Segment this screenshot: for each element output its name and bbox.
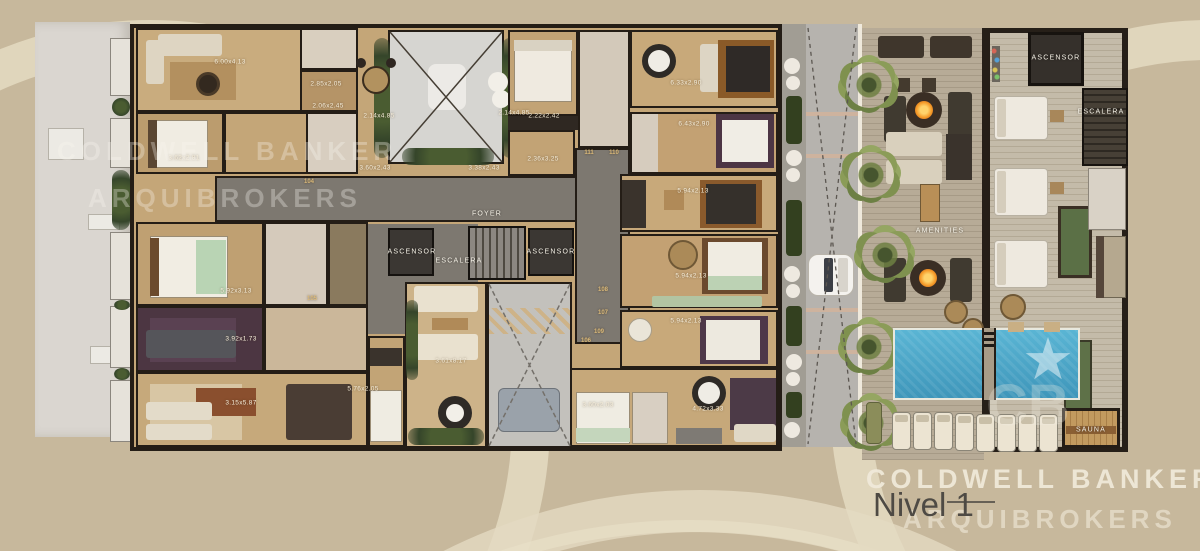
planter bbox=[786, 392, 802, 418]
bed-blanket-green bbox=[576, 428, 630, 442]
deck-sofa-cream bbox=[886, 160, 942, 184]
room-bath-inset bbox=[632, 392, 668, 444]
balcony-table bbox=[784, 266, 800, 282]
sofa bbox=[146, 40, 164, 84]
patio-chair bbox=[386, 58, 396, 68]
elevator-wing bbox=[1028, 32, 1084, 86]
balcony-west bbox=[110, 232, 132, 300]
palm-tree bbox=[848, 152, 894, 198]
watermark-left-line2: ARQUIBROKERS bbox=[88, 183, 362, 214]
balcony-table bbox=[786, 168, 800, 182]
room-closet bbox=[300, 70, 358, 112]
wardrobe bbox=[370, 348, 402, 366]
balcony-table bbox=[786, 284, 800, 298]
bed bbox=[370, 390, 402, 442]
climbing-wall bbox=[992, 46, 1000, 82]
rattan-table bbox=[668, 240, 698, 270]
planting bbox=[402, 148, 494, 165]
watermark-logo-letters: CB bbox=[986, 372, 1070, 439]
lounge-chair-white bbox=[488, 72, 508, 92]
watermark-left-line1: COLDWELL BANKER bbox=[57, 136, 397, 167]
dining-table-top bbox=[698, 382, 720, 404]
candle-console bbox=[920, 184, 940, 222]
bed-sheet bbox=[708, 242, 762, 276]
sun-lounger bbox=[913, 412, 932, 450]
wardrobe bbox=[508, 116, 578, 130]
ramp-hatch bbox=[489, 308, 570, 334]
hedge bbox=[114, 368, 130, 380]
sofa-dark bbox=[146, 330, 236, 358]
wing-bath bbox=[1088, 168, 1126, 230]
kitchenette bbox=[622, 180, 646, 228]
coffee-table bbox=[196, 72, 220, 96]
balcony-table bbox=[786, 150, 802, 166]
balcony-table bbox=[786, 372, 800, 386]
planter bbox=[786, 96, 802, 144]
level-label-rule bbox=[947, 501, 995, 503]
room-kitchen bbox=[264, 306, 368, 372]
elevator-left bbox=[388, 228, 434, 276]
fire-pit-flame bbox=[915, 101, 933, 119]
sofa bbox=[158, 34, 222, 56]
floorplan-render: ★ FOYERASCENSORESCALERAASCENSORASCENSORE… bbox=[0, 0, 1200, 551]
room-bath bbox=[300, 28, 358, 70]
stairs-core bbox=[468, 226, 526, 280]
deck-chair bbox=[922, 78, 936, 92]
rug-purple bbox=[730, 378, 776, 430]
side-table bbox=[664, 190, 684, 210]
patio-table bbox=[362, 66, 390, 94]
deck-table bbox=[946, 134, 972, 180]
deck-sofa bbox=[950, 258, 972, 302]
elevator-right bbox=[528, 228, 574, 276]
driveway-stripe bbox=[806, 308, 858, 312]
hedge bbox=[112, 98, 130, 116]
patio-chair bbox=[356, 58, 366, 68]
planting bbox=[406, 300, 418, 380]
sun-lounger bbox=[892, 412, 911, 450]
deck-sofa-cream bbox=[886, 132, 942, 156]
pool-ladder bbox=[984, 332, 994, 350]
rattan-table bbox=[1000, 294, 1026, 320]
side-table bbox=[1050, 182, 1064, 194]
planter bbox=[786, 306, 802, 346]
balcony-table bbox=[786, 76, 800, 90]
sun-lounger bbox=[934, 412, 953, 450]
car-windshield bbox=[824, 258, 833, 292]
pool-table bbox=[1058, 206, 1092, 278]
driveway-stripe bbox=[806, 112, 858, 116]
bed-blanket-green bbox=[196, 240, 226, 294]
sofa bbox=[146, 402, 212, 420]
room-bath-inset bbox=[632, 114, 658, 172]
bed-pillows bbox=[514, 40, 572, 51]
bench-wood bbox=[432, 318, 468, 330]
planting bbox=[408, 428, 484, 445]
deck-bench bbox=[878, 36, 924, 58]
balcony-table bbox=[784, 58, 800, 74]
balcony-west bbox=[110, 38, 132, 96]
planter bbox=[786, 200, 802, 256]
egg-chair bbox=[628, 318, 652, 342]
level-label: Nivel 1 bbox=[873, 486, 974, 524]
dining-set bbox=[286, 384, 352, 440]
bed-duvet-dark bbox=[706, 184, 756, 224]
daybed bbox=[994, 96, 1048, 140]
room-bath bbox=[264, 222, 328, 306]
palm-tree bbox=[846, 324, 892, 370]
headboard bbox=[150, 238, 159, 296]
balcony-west bbox=[110, 380, 132, 442]
sauna-bench bbox=[1066, 426, 1116, 434]
balcony-table bbox=[784, 422, 800, 438]
balcony-table bbox=[786, 354, 802, 370]
side-table bbox=[1050, 110, 1064, 122]
courtyard-platform bbox=[428, 64, 466, 110]
car-roof bbox=[838, 258, 848, 292]
dining-table-top bbox=[648, 50, 670, 72]
bistro-table-top bbox=[446, 404, 464, 422]
daybed bbox=[994, 240, 1048, 288]
bed-dark bbox=[726, 46, 770, 92]
bed-gray bbox=[676, 428, 722, 444]
deck-chair bbox=[896, 78, 910, 92]
balcony-west bbox=[110, 306, 132, 368]
sofa bbox=[734, 424, 776, 442]
stairs-wing bbox=[1082, 88, 1128, 166]
bar-counter bbox=[1096, 236, 1104, 298]
car-platform bbox=[498, 388, 560, 432]
palm-tree bbox=[862, 232, 908, 278]
room-utility bbox=[328, 222, 368, 306]
bed-blanket-green bbox=[708, 276, 762, 290]
daybed bbox=[994, 168, 1048, 216]
sun-lounger-olive bbox=[866, 402, 882, 444]
driveway-stripe bbox=[806, 154, 858, 158]
deck-bench bbox=[930, 36, 972, 58]
sun-lounger bbox=[955, 413, 974, 451]
palm-tree bbox=[846, 62, 892, 108]
hedge bbox=[114, 300, 130, 310]
fire-pit-flame bbox=[919, 269, 937, 287]
sofa bbox=[146, 424, 212, 440]
room-bath-column bbox=[578, 30, 630, 148]
bed-sheet bbox=[722, 120, 768, 162]
sofa-green bbox=[652, 296, 762, 307]
sofa bbox=[700, 44, 720, 92]
sofa bbox=[414, 286, 478, 312]
sofa bbox=[414, 334, 478, 360]
bed-sheet bbox=[706, 320, 760, 360]
room-small bbox=[508, 130, 575, 176]
